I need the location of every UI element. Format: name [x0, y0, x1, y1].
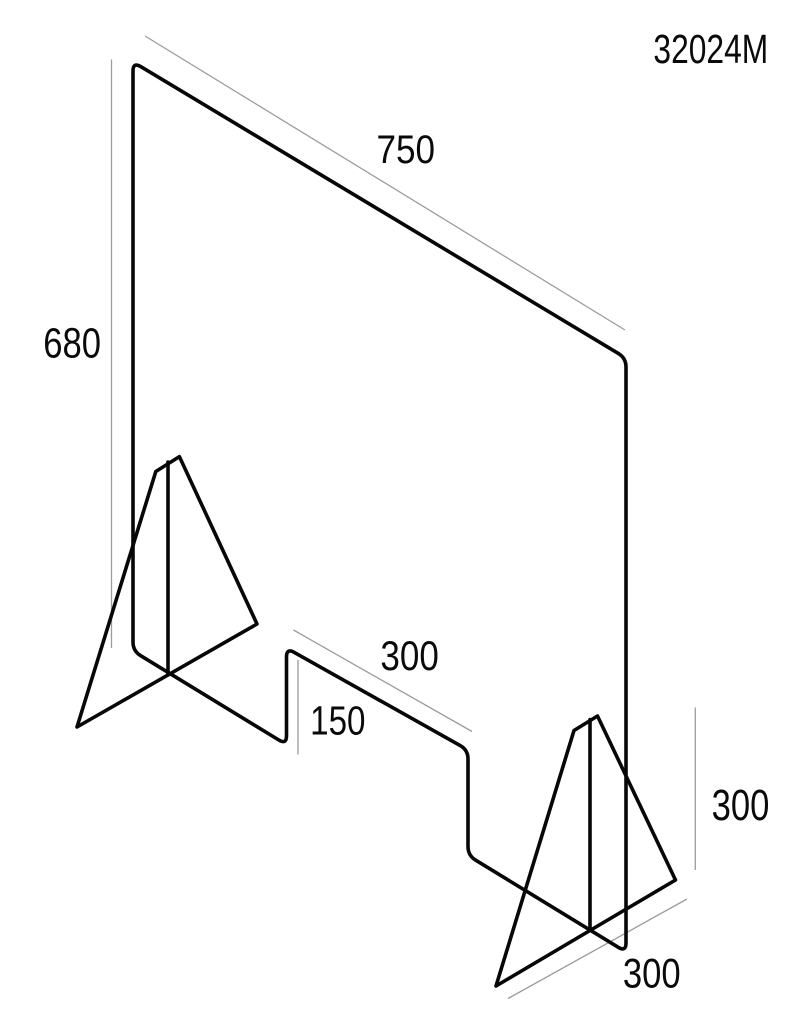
svg-text:750: 750: [376, 128, 434, 173]
svg-text:680: 680: [43, 320, 101, 367]
svg-text:150: 150: [310, 697, 365, 743]
svg-text:32024M: 32024M: [653, 26, 768, 72]
svg-text:300: 300: [380, 633, 438, 679]
svg-text:300: 300: [712, 782, 770, 829]
svg-text:300: 300: [623, 950, 681, 997]
